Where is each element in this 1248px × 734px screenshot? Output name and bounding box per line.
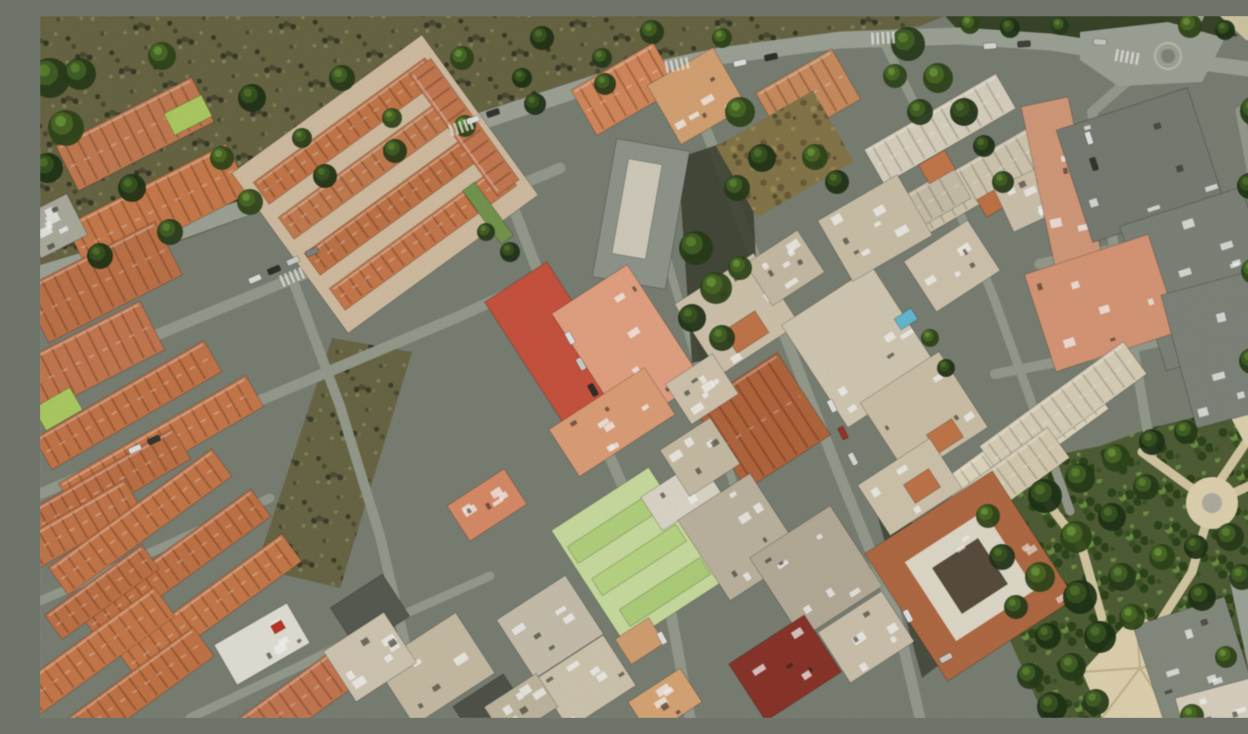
satellite-image bbox=[40, 16, 1248, 718]
scene-root bbox=[40, 16, 1248, 718]
photo-grain bbox=[40, 16, 1248, 718]
satellite-photo bbox=[40, 16, 1248, 718]
